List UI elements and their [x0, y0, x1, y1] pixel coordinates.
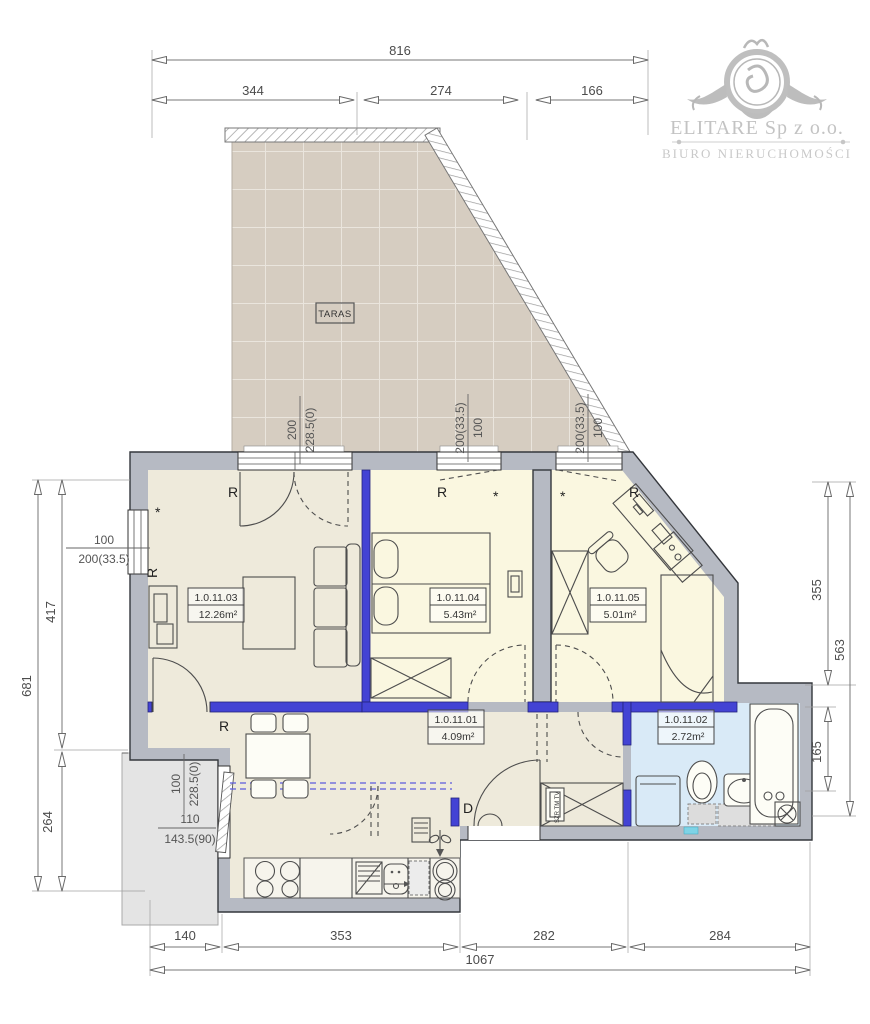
terrace: TARAS [225, 128, 633, 464]
svg-text:563: 563 [832, 639, 847, 661]
cyan-marker [684, 827, 698, 834]
dishwasher [409, 861, 429, 895]
svg-text:200(33.5): 200(33.5) [78, 552, 129, 566]
svg-text:R: R [437, 484, 447, 500]
svg-text:200: 200 [285, 420, 299, 440]
svg-text:TARAS: TARAS [318, 309, 351, 320]
logo-divider [672, 140, 850, 145]
window-sill [244, 446, 344, 452]
window-sill [440, 446, 498, 452]
svg-text:284: 284 [709, 928, 731, 943]
svg-text:200(33.5): 200(33.5) [453, 402, 467, 453]
svg-text:100: 100 [471, 418, 485, 438]
svg-text:264: 264 [40, 811, 55, 833]
svg-text:5.01m²: 5.01m² [604, 609, 637, 621]
svg-text:140: 140 [174, 928, 196, 943]
svg-text:*: * [155, 504, 161, 520]
svg-text:1.0.11.02: 1.0.11.02 [664, 714, 707, 726]
svg-text:344: 344 [242, 83, 264, 98]
svg-text:*: * [493, 488, 499, 504]
svg-text:*: * [560, 488, 566, 504]
logo: ELITARE Sp z o.o. BIURO NIERUCHOMOŚCI [662, 40, 852, 161]
svg-text:355: 355 [809, 579, 824, 601]
living-room-floor [148, 470, 362, 712]
logo-emblem-icon [687, 40, 827, 119]
floor-plan: ELITARE Sp z o.o. BIURO NIERUCHOMOŚCI TA… [0, 0, 870, 1024]
svg-text:228.5(0): 228.5(0) [187, 762, 201, 807]
svg-text:R: R [228, 484, 238, 500]
logo-company: ELITARE Sp z o.o. [670, 117, 844, 139]
svg-text:1067: 1067 [466, 952, 495, 967]
svg-text:353: 353 [330, 928, 352, 943]
svg-text:2.72m²: 2.72m² [672, 731, 705, 743]
svg-text:228.5(0): 228.5(0) [303, 408, 317, 453]
svg-text:417: 417 [43, 601, 58, 623]
svg-text:282: 282 [533, 928, 555, 943]
svg-text:1.0.11.01: 1.0.11.01 [434, 714, 477, 726]
room-label-hall: 1.0.11.01 4.09m² [428, 710, 484, 744]
svg-text:110: 110 [180, 812, 199, 826]
svg-text:R: R [629, 484, 639, 500]
svg-text:12.26m²: 12.26m² [199, 609, 238, 621]
svg-text:166: 166 [581, 83, 603, 98]
dining-table [246, 734, 310, 778]
room-label-bedroom2: 1.0.11.05 5.01m² [590, 588, 646, 622]
room-label-living: 1.0.11.03 12.26m² [188, 588, 244, 622]
svg-text:165: 165 [809, 741, 824, 763]
svg-text:100: 100 [94, 533, 114, 547]
room-label-bathroom: 1.0.11.02 2.72m² [658, 710, 714, 744]
svg-text:100: 100 [591, 418, 605, 438]
svg-text:1.0.11.05: 1.0.11.05 [596, 592, 639, 604]
svg-text:274: 274 [430, 83, 452, 98]
svg-text:R: R [144, 568, 160, 578]
room-label-bedroom1: 1.0.11.04 5.43m² [430, 588, 486, 622]
closet-label: SZR TM TV [555, 792, 561, 823]
svg-text:816: 816 [389, 43, 411, 58]
svg-text:R: R [219, 718, 229, 734]
svg-text:4.09m²: 4.09m² [442, 731, 475, 743]
svg-text:5.43m²: 5.43m² [444, 609, 477, 621]
svg-text:143.5(90): 143.5(90) [164, 832, 215, 846]
svg-text:100: 100 [169, 774, 183, 794]
svg-text:1.0.11.04: 1.0.11.04 [436, 592, 479, 604]
logo-subtitle: BIURO NIERUCHOMOŚCI [662, 146, 852, 161]
svg-text:D: D [463, 800, 473, 816]
svg-text:681: 681 [19, 675, 34, 697]
terrace-edge-hatch-top [225, 128, 440, 142]
toilet [687, 761, 717, 824]
window-living-left [128, 510, 148, 574]
svg-text:200(33.5): 200(33.5) [573, 402, 587, 453]
svg-text:1.0.11.03: 1.0.11.03 [194, 592, 237, 604]
